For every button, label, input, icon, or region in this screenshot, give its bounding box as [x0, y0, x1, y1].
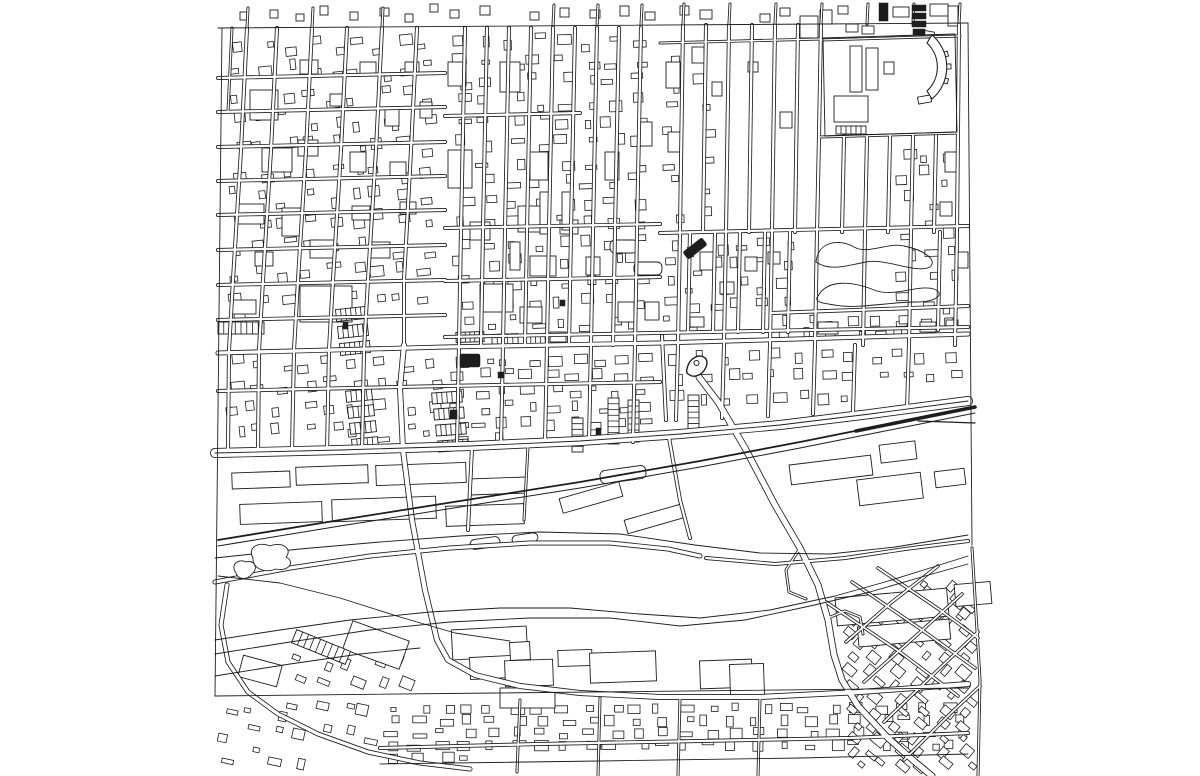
building-footprint: [700, 10, 712, 19]
landmark-shape: [251, 544, 290, 570]
filled-building: [450, 410, 457, 419]
building-footprint: [377, 437, 390, 443]
building-footprint: [554, 55, 562, 61]
building-footprint: [559, 734, 567, 739]
building-footprint: [918, 706, 929, 717]
building-footprint: [530, 256, 556, 276]
building-footprint: [480, 6, 490, 15]
building-footprint: [896, 272, 906, 281]
building-footprint: [229, 186, 235, 194]
building-footprint: [230, 95, 237, 103]
building-footprint: [453, 36, 463, 46]
building-footprint: [295, 674, 306, 683]
building-footprint: [633, 719, 640, 725]
building-footprint: [579, 183, 592, 189]
building-footprint: [396, 261, 403, 272]
building-footprint: [833, 705, 840, 713]
building-footprint: [409, 424, 416, 429]
building-footprint: [838, 6, 848, 14]
building-footprint: [729, 663, 764, 696]
building-footprint: [952, 370, 963, 377]
building-footprint: [443, 752, 454, 762]
building-footprint: [430, 4, 438, 12]
building-footprint: [548, 356, 562, 366]
building-footprint: [539, 145, 549, 152]
building-footprint: [628, 705, 640, 713]
building-footprint: [666, 258, 676, 265]
building-footprint: [423, 431, 429, 437]
building-footprint: [376, 462, 467, 485]
building-footprint: [413, 716, 427, 723]
building-footprint: [305, 215, 316, 222]
building-footprint: [930, 4, 948, 16]
building-footprint: [510, 315, 516, 320]
building-footprint: [472, 423, 485, 428]
building-footprint: [672, 175, 679, 181]
building-footprint: [530, 152, 548, 180]
building-footprint: [663, 165, 674, 171]
building-footprint: [232, 300, 256, 314]
building-footprint: [384, 76, 391, 82]
building-footprint: [413, 734, 427, 738]
building-footprint: [276, 726, 283, 733]
building-footprint: [296, 465, 369, 486]
building-footprint: [511, 138, 524, 143]
building-footprint: [893, 7, 909, 17]
building-footprint: [726, 716, 733, 727]
building-footprint: [794, 368, 803, 379]
building-footprint: [915, 692, 929, 704]
building-footprint: [581, 45, 589, 52]
building-footprint: [585, 120, 590, 128]
building-footprint: [360, 62, 376, 74]
building-footprint: [895, 759, 910, 773]
building-footprint: [426, 220, 432, 227]
building-footprint: [484, 716, 494, 722]
building-footprint: [531, 403, 537, 412]
building-footprint: [884, 62, 894, 74]
building-footprint: [482, 409, 490, 415]
building-footprint: [600, 409, 608, 414]
building-footprint: [665, 297, 678, 305]
building-footprint: [664, 316, 670, 321]
building-footprint: [879, 441, 917, 463]
building-footprint: [564, 72, 573, 82]
building-footprint: [760, 14, 770, 22]
building-footprint: [317, 677, 330, 686]
building-footprint: [553, 297, 559, 308]
building-footprint: [296, 14, 304, 21]
building-footprint: [353, 122, 360, 132]
building-footprint: [613, 731, 624, 739]
building-footprint: [624, 504, 684, 533]
building-footprint: [955, 664, 972, 681]
building-footprint: [823, 371, 837, 380]
building-footprint: [520, 307, 542, 323]
building-footprint: [668, 276, 674, 285]
building-footprint: [653, 704, 658, 713]
building-footprint: [284, 237, 297, 243]
building-footprint: [459, 119, 472, 124]
building-footprint: [282, 295, 296, 305]
building-footprint: [290, 59, 296, 70]
building-footprint: [618, 133, 625, 144]
building-footprint: [510, 641, 531, 660]
rowhouse-outline: [345, 389, 372, 403]
building-footprint: [334, 422, 344, 430]
filled-building: [879, 3, 888, 21]
building-footprint: [489, 728, 499, 736]
road-segment: [589, 28, 597, 443]
building-footprint: [417, 268, 431, 276]
building-footprint: [604, 64, 616, 70]
building-footprint: [948, 246, 954, 254]
building-footprint: [600, 117, 610, 128]
building-footprint: [505, 369, 513, 374]
building-footprint: [639, 353, 653, 361]
building-footprint: [781, 715, 788, 726]
building-footprint: [711, 706, 718, 711]
building-footprint: [417, 297, 428, 304]
building-footprint: [267, 757, 281, 767]
building-footprint: [324, 662, 333, 672]
building-footprint: [795, 353, 802, 363]
filled-building: [912, 21, 926, 27]
building-footprint: [960, 744, 975, 759]
building-footprint: [424, 706, 430, 713]
building-footprint: [420, 102, 432, 118]
building-footprint: [476, 391, 489, 399]
building-footprint: [618, 302, 634, 322]
building-footprint: [604, 715, 614, 725]
building-footprint: [679, 732, 692, 737]
building-footprint: [297, 365, 308, 374]
building-footprint: [307, 189, 314, 195]
filled-building: [596, 428, 601, 435]
building-footprint: [446, 705, 454, 713]
building-footprint: [286, 703, 297, 710]
building-footprint: [518, 369, 531, 379]
building-footprint: [639, 166, 646, 172]
building-footprint: [801, 390, 809, 398]
building-footprint: [382, 86, 391, 93]
building-footprint: [848, 715, 860, 724]
building-footprint: [262, 148, 292, 172]
building-footprint: [470, 222, 490, 240]
building-footprint: [780, 8, 790, 16]
building-footprint: [615, 356, 628, 365]
building-footprint: [484, 243, 494, 249]
building-footprint: [248, 724, 260, 731]
building-footprint: [521, 417, 531, 427]
building-footprint: [364, 738, 378, 746]
building-footprint: [347, 703, 355, 709]
building-footprint: [350, 152, 366, 172]
building-footprint: [933, 744, 939, 750]
rowhouse-strip: [345, 389, 372, 403]
building-footprint: [440, 719, 453, 726]
building-footprint: [530, 12, 539, 20]
building-footprint: [558, 104, 572, 111]
building-footprint: [259, 191, 266, 199]
building-footprint: [560, 8, 569, 17]
building-footprint: [701, 395, 706, 406]
building-footprint: [370, 265, 385, 277]
road-segment: [660, 226, 968, 233]
building-footprint: [268, 41, 274, 47]
building-footprint: [300, 270, 310, 279]
building-footprint: [461, 705, 471, 713]
road-segment: [795, 25, 798, 232]
road-segment: [545, 28, 553, 444]
road-segment: [813, 25, 821, 414]
building-footprint: [217, 733, 227, 743]
building-footprint: [848, 652, 859, 663]
building-footprint: [423, 60, 431, 66]
road-segment: [457, 28, 465, 446]
landmark-shape: [927, 35, 947, 99]
building-footprint: [919, 165, 929, 175]
filled-building: [913, 29, 925, 35]
building-footprint: [862, 26, 874, 34]
building-footprint: [462, 714, 470, 724]
building-footprint: [841, 396, 847, 402]
building-footprint: [533, 324, 546, 329]
rowhouse-strip: [436, 423, 467, 436]
building-footprint: [842, 662, 857, 677]
building-footprint: [805, 745, 814, 749]
building-footprint: [488, 324, 495, 329]
building-footprint: [771, 348, 780, 358]
building-footprint: [689, 304, 700, 313]
building-footprint: [391, 707, 396, 711]
building-footprint: [830, 715, 838, 724]
building-footprint: [426, 359, 435, 368]
building-footprint: [645, 12, 655, 20]
building-footprint: [635, 729, 644, 738]
building-footprint: [749, 351, 760, 361]
building-footprint: [745, 257, 757, 271]
building-footprint: [408, 407, 416, 415]
building-footprint: [565, 374, 579, 381]
building-footprint: [305, 401, 317, 408]
building-footprint: [858, 761, 865, 768]
building-footprint: [780, 703, 792, 710]
building-footprint: [805, 717, 817, 727]
building-footprint: [563, 720, 576, 725]
building-footprint: [307, 424, 315, 429]
building-footprint: [510, 242, 520, 270]
landmark-shape: [687, 356, 707, 376]
building-footprint: [638, 402, 651, 411]
building-footprint: [373, 357, 384, 366]
building-footprint: [558, 649, 593, 666]
building-footprint: [640, 122, 652, 146]
building-footprint: [658, 718, 667, 727]
building-footprint: [583, 729, 594, 734]
building-footprint: [227, 709, 239, 716]
building-footprint: [379, 677, 389, 689]
building-footprint: [520, 386, 534, 395]
building-footprint: [487, 196, 497, 203]
building-footprint: [921, 156, 927, 163]
building-footprint: [392, 294, 399, 301]
building-footprint: [615, 705, 624, 712]
building-footprint: [586, 706, 593, 712]
filled-building: [912, 5, 926, 11]
building-footprint: [558, 319, 564, 327]
building-footprint: [436, 729, 443, 733]
building-footprint: [560, 259, 568, 268]
building-footprint: [253, 747, 260, 753]
building-footprint: [846, 24, 858, 32]
building-footprint: [688, 717, 694, 722]
building-footprint: [405, 14, 413, 22]
building-footprint: [750, 718, 755, 726]
building-footprint: [645, 302, 659, 320]
rowhouse-strip: [434, 407, 465, 420]
building-footprint: [700, 715, 707, 726]
building-footprint: [926, 374, 934, 381]
building-footprint: [693, 271, 701, 276]
building-footprint: [425, 252, 436, 258]
building-footprint: [693, 74, 704, 84]
building-footprint: [505, 400, 513, 405]
building-footprint: [640, 419, 652, 424]
building-footprint: [554, 134, 567, 143]
building-footprint: [730, 257, 737, 268]
building-footprint: [505, 216, 519, 226]
rowhouse-strip: [218, 322, 264, 334]
landmark-shape: [817, 283, 939, 306]
building-footprint: [244, 708, 251, 714]
building-footprint: [592, 368, 602, 378]
building-footprint: [614, 374, 628, 382]
building-footprint: [940, 202, 952, 216]
building-footprint: [834, 96, 868, 122]
building-footprint: [766, 705, 772, 714]
building-footprint: [390, 162, 406, 176]
building-footprint: [507, 182, 520, 188]
building-footprint: [232, 471, 291, 489]
map-line: [968, 23, 972, 545]
building-footprint: [232, 42, 242, 52]
building-footprint: [385, 108, 399, 126]
building-footprint: [730, 728, 742, 739]
building-footprint: [914, 354, 924, 365]
building-footprint: [666, 62, 680, 88]
building-footprint: [284, 93, 295, 104]
filled-building: [560, 300, 565, 306]
building-footprint: [480, 284, 513, 312]
building-footprint: [880, 372, 888, 377]
building-footprint: [574, 354, 587, 364]
building-footprint: [350, 37, 363, 45]
building-footprint: [351, 676, 367, 689]
building-footprint: [466, 729, 476, 737]
building-footprint: [557, 34, 571, 44]
building-footprint: [392, 716, 399, 723]
building-footprint: [681, 705, 694, 712]
building-footprint: [628, 173, 637, 180]
rowhouse-strip: [572, 418, 583, 452]
building-footprint: [659, 727, 668, 735]
building-footprint: [421, 197, 432, 205]
building-footprint: [481, 368, 491, 377]
building-footprint: [360, 146, 366, 152]
building-footprint: [925, 250, 939, 257]
building-footprint: [797, 708, 808, 713]
building-footprint: [347, 98, 354, 106]
building-footprint: [547, 406, 560, 413]
building-footprint: [873, 676, 885, 687]
building-footprint: [323, 724, 332, 733]
building-footprint: [221, 758, 233, 765]
building-footprint: [465, 317, 474, 325]
building-footprint: [943, 227, 954, 238]
building-footprint: [535, 33, 546, 39]
building-footprint: [460, 756, 468, 760]
building-footprint: [692, 47, 704, 63]
building-footprint: [316, 701, 329, 711]
building-footprint: [239, 426, 245, 437]
building-footprint: [350, 12, 358, 20]
building-footprint: [780, 112, 792, 128]
building-footprint: [672, 241, 678, 251]
building-footprint: [601, 79, 613, 84]
building-footprint: [712, 82, 722, 96]
building-footprint: [743, 373, 753, 379]
building-footprint: [870, 316, 880, 326]
building-footprint: [570, 391, 581, 398]
map-viewport: [0, 0, 1200, 776]
building-footprint: [561, 236, 570, 247]
building-footprint: [272, 408, 279, 418]
building-footprint: [399, 676, 415, 691]
building-footprint: [620, 6, 629, 16]
building-footprint: [240, 502, 323, 525]
building-footprint: [517, 159, 525, 170]
building-footprint: [890, 664, 906, 679]
building-footprint: [285, 47, 297, 57]
building-footprint: [637, 301, 645, 309]
building-footprint: [488, 359, 494, 364]
building-footprint: [536, 246, 543, 251]
building-footprint: [581, 235, 590, 246]
building-footprint: [922, 651, 931, 660]
building-footprint: [843, 352, 852, 361]
rowhouse-strip: [836, 126, 866, 134]
city-map-canvas: [0, 0, 1200, 776]
building-footprint: [292, 654, 301, 661]
building-footprint: [934, 468, 966, 488]
building-footprint: [292, 728, 306, 740]
building-footprint: [946, 353, 957, 363]
building-footprint: [729, 369, 740, 380]
building-footprint: [850, 46, 862, 92]
building-footprint: [818, 394, 829, 405]
building-footprint: [336, 47, 345, 55]
building-footprint: [866, 48, 878, 90]
building-footprint: [782, 742, 787, 748]
building-footprint: [873, 357, 882, 364]
building-footprint: [517, 92, 524, 101]
building-footprint: [346, 359, 355, 368]
building-footprint: [384, 732, 398, 737]
building-footprint: [896, 293, 909, 301]
building-footprint: [958, 252, 968, 268]
building-footprint: [355, 262, 366, 272]
